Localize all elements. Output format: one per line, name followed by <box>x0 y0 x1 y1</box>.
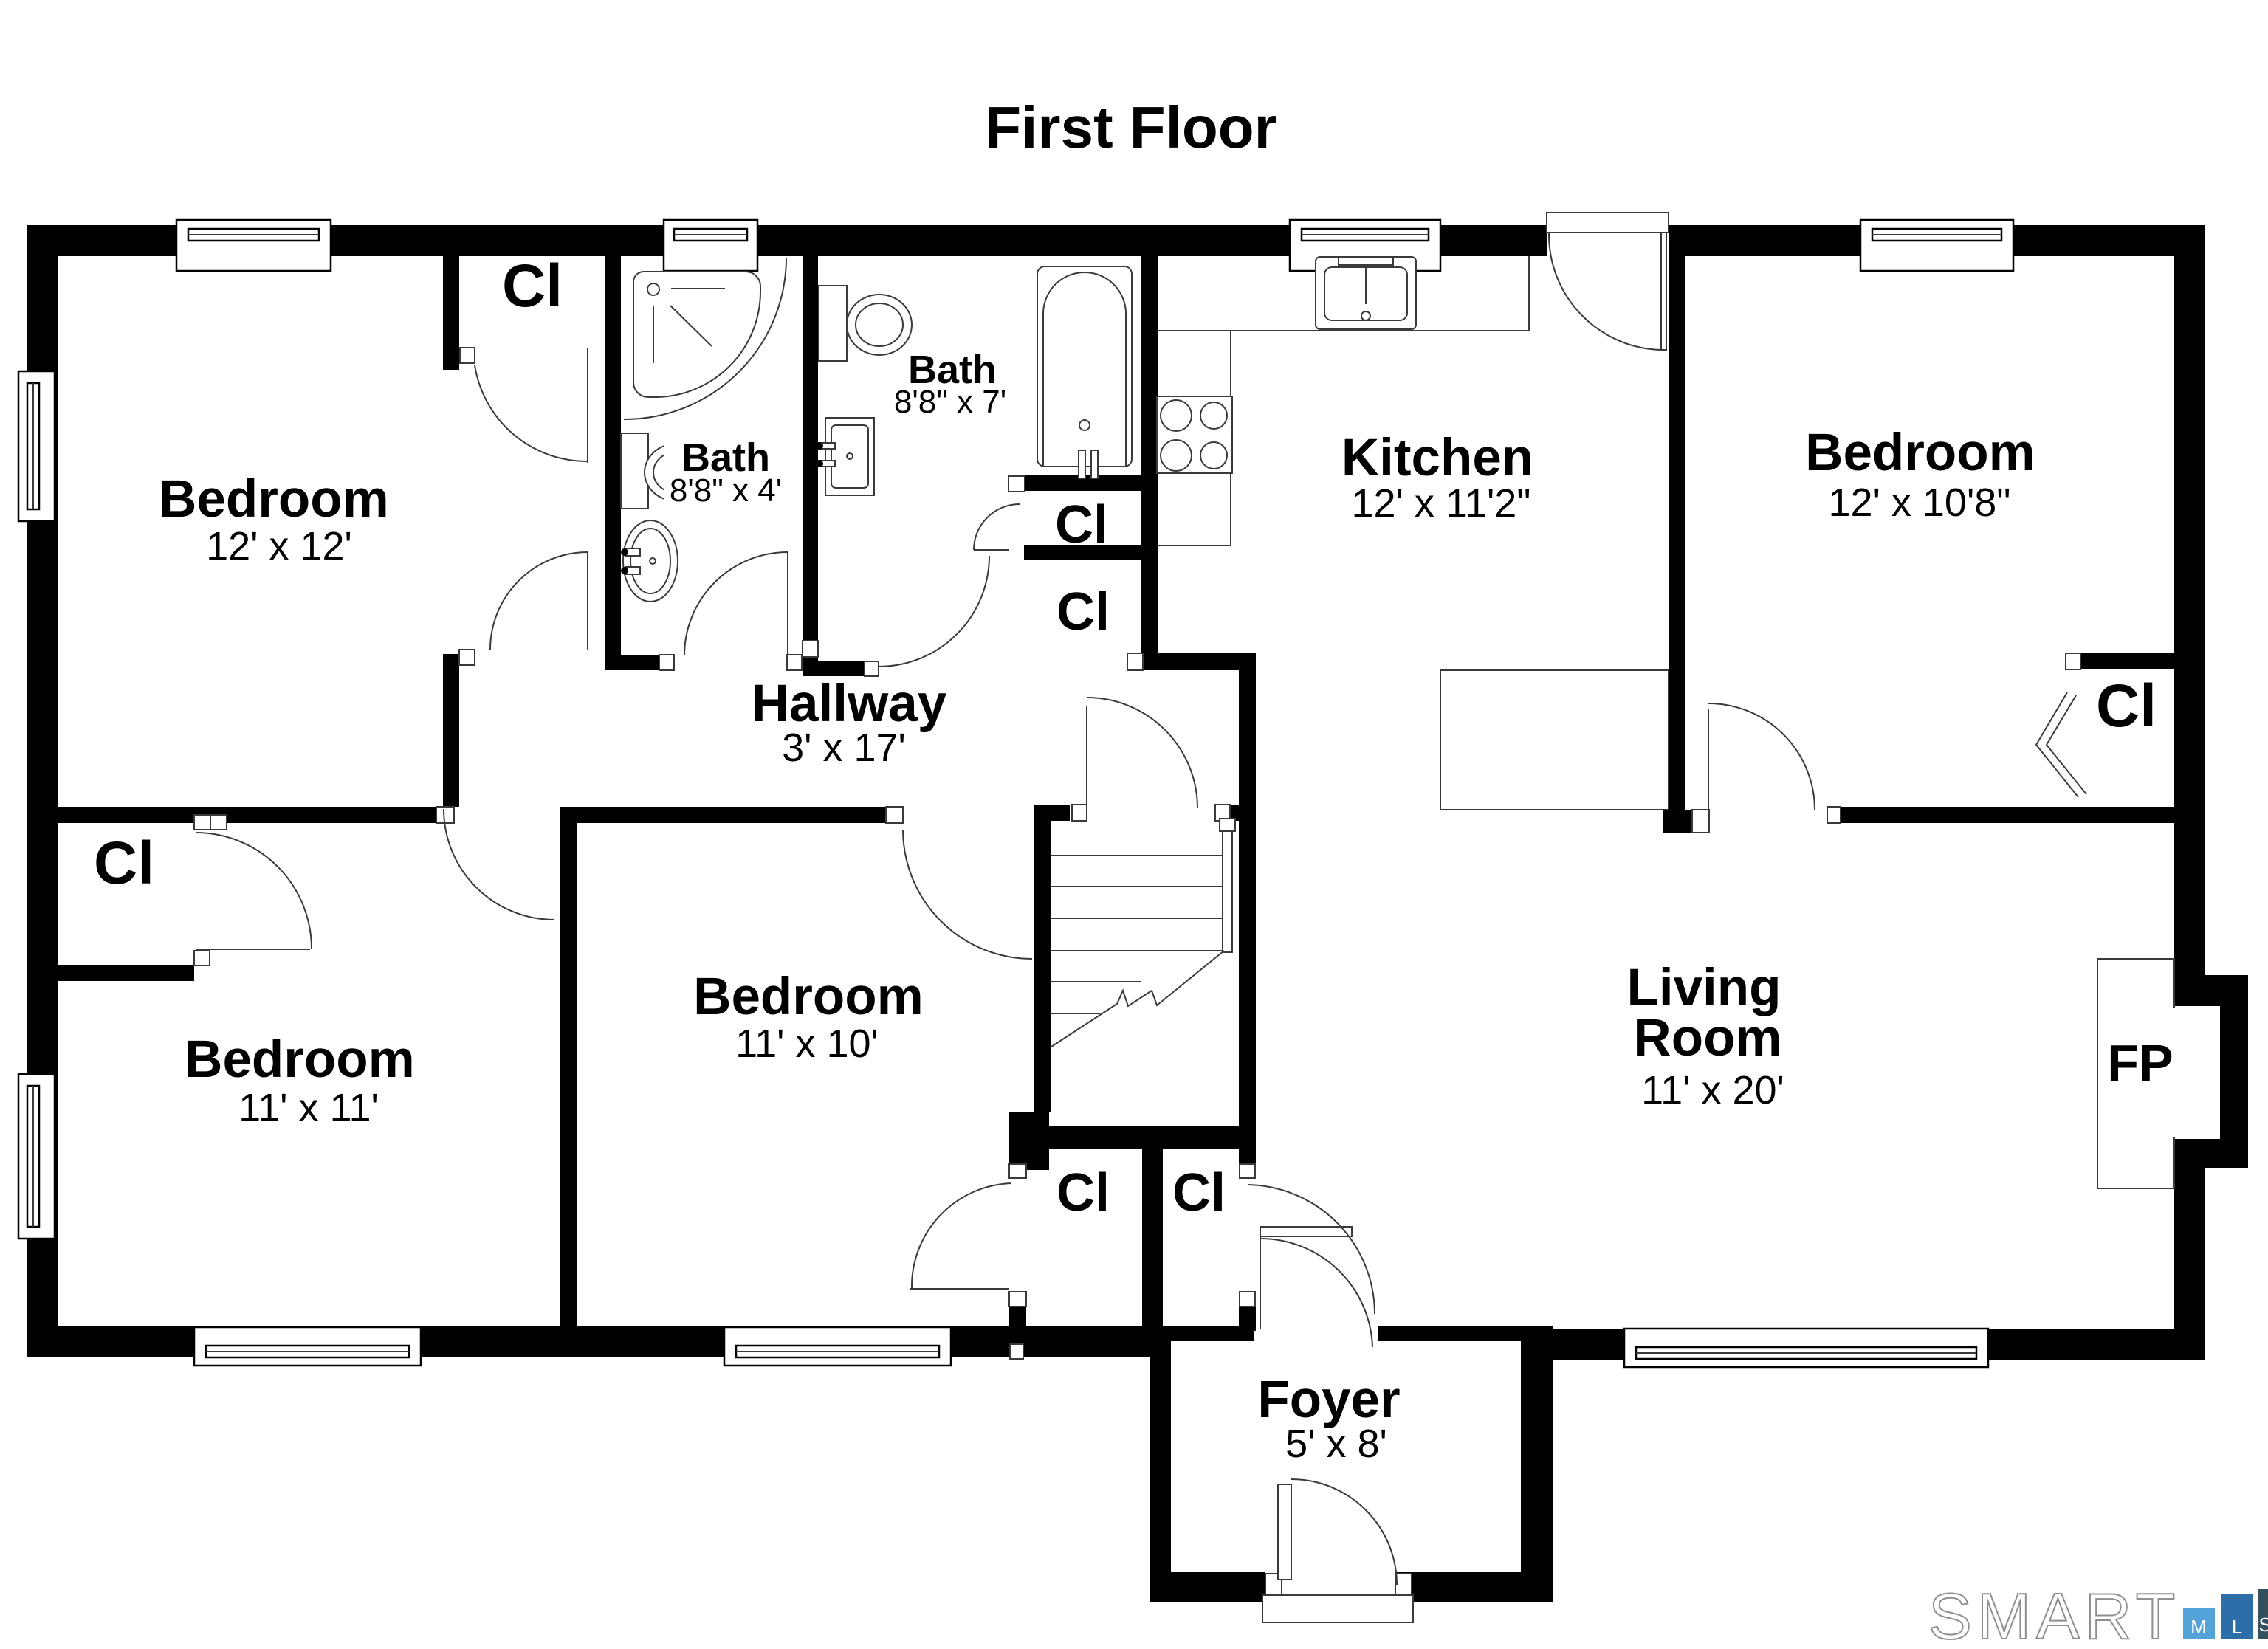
svg-text:Kitchen: Kitchen <box>1341 429 1533 487</box>
svg-text:S: S <box>2258 1614 2268 1636</box>
svg-text:Cl: Cl <box>2096 672 2157 740</box>
svg-text:Cl: Cl <box>94 830 154 897</box>
svg-text:M: M <box>2190 1616 2207 1638</box>
svg-text:8'8" x 7': 8'8" x 7' <box>894 384 1006 420</box>
svg-text:12' x 10'8": 12' x 10'8" <box>1829 481 2011 525</box>
svg-text:First Floor: First Floor <box>985 94 1277 160</box>
svg-text:Cl: Cl <box>1056 582 1110 641</box>
svg-text:FP: FP <box>2107 1034 2173 1092</box>
svg-text:Bedroom: Bedroom <box>185 1030 415 1089</box>
svg-text:3' x 17': 3' x 17' <box>782 726 906 770</box>
svg-text:12' x 12': 12' x 12' <box>206 524 352 568</box>
svg-text:SMART: SMART <box>1928 1580 2180 1649</box>
svg-text:Cl: Cl <box>502 252 563 320</box>
svg-text:Bedroom: Bedroom <box>693 968 924 1026</box>
svg-text:11' x 11': 11' x 11' <box>238 1086 379 1130</box>
svg-text:11' x 10': 11' x 10' <box>735 1022 879 1066</box>
svg-text:Hallway: Hallway <box>752 675 947 733</box>
svg-text:L: L <box>2232 1616 2242 1638</box>
svg-text:Room: Room <box>1633 1009 1781 1067</box>
svg-text:Bedroom: Bedroom <box>1805 424 2035 482</box>
svg-text:5' x 8': 5' x 8' <box>1285 1422 1387 1466</box>
svg-text:8'8" x 4': 8'8" x 4' <box>670 472 782 509</box>
svg-text:Cl: Cl <box>1055 495 1108 554</box>
svg-text:12' x 11'2": 12' x 11'2" <box>1352 481 1531 526</box>
svg-text:Cl: Cl <box>1056 1163 1110 1222</box>
svg-text:Cl: Cl <box>1172 1163 1226 1222</box>
svg-text:Bedroom: Bedroom <box>159 470 389 529</box>
svg-text:Foyer: Foyer <box>1257 1371 1400 1429</box>
svg-text:11' x 20': 11' x 20' <box>1641 1068 1784 1112</box>
